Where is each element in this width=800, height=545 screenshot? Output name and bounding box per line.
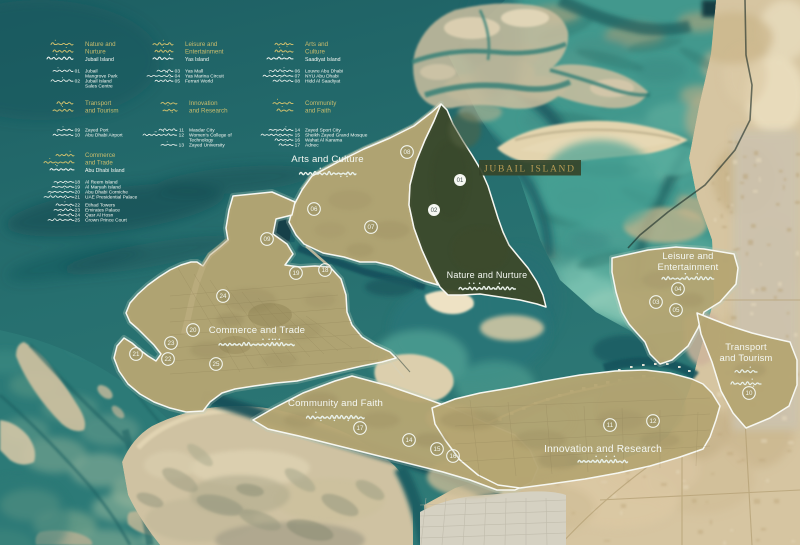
svg-text:Innovation: Innovation (189, 100, 218, 107)
svg-text:Entertainment: Entertainment (185, 48, 224, 55)
svg-text:05: 05 (673, 307, 680, 314)
svg-text:Crown Prince Court: Crown Prince Court (85, 218, 128, 224)
svg-text:Arts and Culture: Arts and Culture (291, 154, 364, 165)
svg-text:24: 24 (220, 293, 227, 300)
svg-text:02: 02 (431, 208, 438, 214)
svg-text:Innovation and Research: Innovation and Research (544, 444, 662, 455)
svg-text:12: 12 (650, 418, 657, 425)
svg-text:Sales Centre: Sales Centre (85, 84, 113, 90)
svg-text:10: 10 (746, 390, 753, 397)
svg-text:Zayed University: Zayed University (189, 143, 225, 149)
svg-text:13: 13 (179, 143, 185, 149)
svg-text:and Tourism: and Tourism (85, 107, 119, 114)
svg-text:20: 20 (190, 327, 197, 334)
svg-text:10: 10 (75, 133, 81, 139)
svg-text:14: 14 (406, 437, 413, 444)
svg-text:Adnec: Adnec (305, 143, 319, 149)
svg-text:17: 17 (357, 425, 364, 432)
svg-text:Hidd Al Saadiyat: Hidd Al Saadiyat (305, 79, 341, 85)
svg-text:07: 07 (368, 224, 375, 231)
svg-text:21: 21 (133, 351, 140, 358)
svg-text:21: 21 (75, 195, 81, 201)
svg-text:Entertainment: Entertainment (658, 261, 719, 272)
svg-text:Leisure and: Leisure and (185, 41, 218, 48)
svg-text:02: 02 (75, 79, 81, 85)
svg-text:08: 08 (404, 149, 411, 156)
svg-text:15: 15 (434, 446, 441, 453)
svg-text:22: 22 (165, 356, 172, 363)
svg-text:04: 04 (675, 286, 682, 293)
svg-text:Abu Dhabi Island: Abu Dhabi Island (85, 168, 125, 174)
svg-text:16: 16 (450, 453, 457, 460)
svg-text:01: 01 (457, 178, 464, 184)
svg-text:05: 05 (175, 79, 181, 85)
svg-text:23: 23 (168, 340, 175, 347)
svg-text:19: 19 (293, 270, 300, 277)
svg-text:Abu Dhabi Airport: Abu Dhabi Airport (85, 133, 123, 139)
svg-text:Ferrari World: Ferrari World (185, 79, 213, 85)
svg-text:Transport: Transport (725, 341, 767, 352)
svg-text:06: 06 (311, 206, 318, 213)
svg-text:11: 11 (607, 422, 614, 429)
svg-text:12: 12 (179, 133, 185, 139)
svg-text:01: 01 (75, 69, 81, 75)
svg-text:Arts and: Arts and (305, 41, 329, 48)
svg-text:Commerce and Trade: Commerce and Trade (209, 325, 305, 336)
svg-text:and Tourism: and Tourism (719, 352, 772, 363)
svg-text:and Trade: and Trade (85, 159, 113, 166)
svg-text:and Research: and Research (189, 107, 228, 114)
svg-text:25: 25 (213, 361, 220, 368)
svg-text:Transport: Transport (85, 100, 112, 107)
svg-text:and Faith: and Faith (305, 107, 331, 114)
svg-text:Community: Community (305, 100, 337, 107)
svg-text:08: 08 (295, 79, 301, 85)
svg-text:18: 18 (322, 267, 329, 274)
svg-text:Nature and: Nature and (85, 41, 116, 48)
svg-text:JUBAIL ISLAND: JUBAIL ISLAND (484, 165, 576, 175)
svg-text:09: 09 (264, 236, 271, 243)
svg-text:Nature and Nurture: Nature and Nurture (447, 270, 528, 280)
svg-text:Jubail Island: Jubail Island (85, 57, 114, 63)
svg-text:Culture: Culture (305, 48, 326, 55)
svg-text:Yas Island: Yas Island (185, 57, 209, 63)
svg-text:Commerce: Commerce (85, 152, 116, 159)
svg-text:03: 03 (653, 299, 660, 306)
svg-text:UAE Presidential Palace: UAE Presidential Palace (85, 195, 138, 201)
svg-text:Community and Faith: Community and Faith (288, 398, 383, 409)
svg-text:25: 25 (75, 218, 81, 224)
svg-text:Leisure and: Leisure and (662, 250, 713, 261)
svg-text:Nurture: Nurture (85, 48, 106, 55)
svg-text:17: 17 (295, 143, 301, 149)
svg-text:Saadiyat Island: Saadiyat Island (305, 57, 341, 63)
